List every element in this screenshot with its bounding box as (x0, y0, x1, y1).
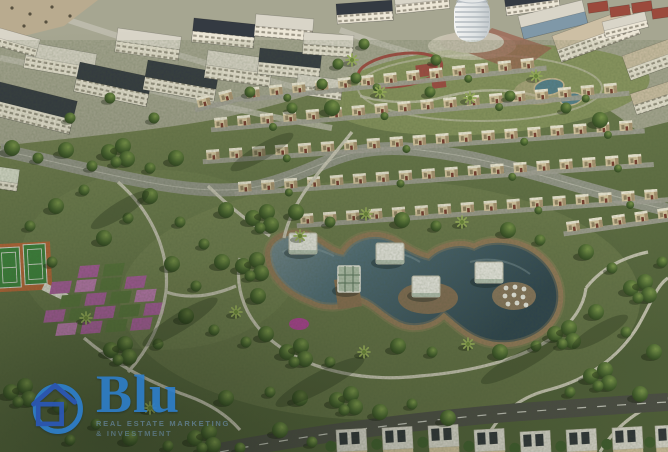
aerial-render-image: Blu REAL ESTATE MARKETING & INVESTMENT (0, 0, 668, 452)
vignette (0, 0, 668, 452)
community-aerial-scene (0, 0, 668, 452)
